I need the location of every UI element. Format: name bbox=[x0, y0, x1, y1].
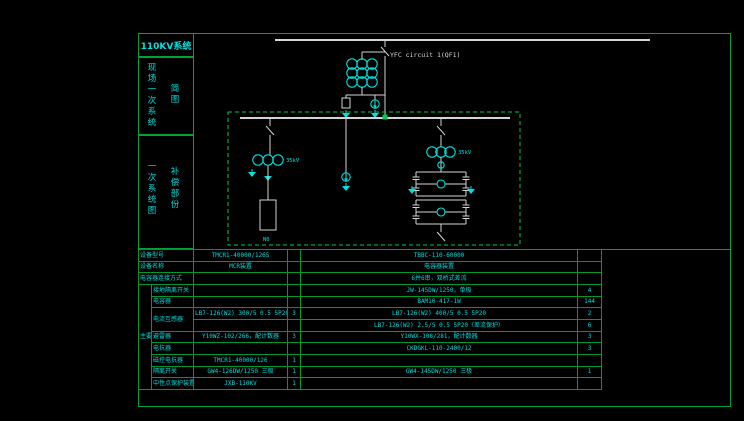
spec-qty: 4 bbox=[578, 284, 602, 296]
feeder-label: YFC circuit 1(QF1) bbox=[390, 51, 460, 59]
spec-qty: 2 bbox=[578, 308, 602, 320]
capacitor-bridge bbox=[413, 172, 470, 196]
ground-icon bbox=[408, 186, 416, 194]
grounding-switch-icon bbox=[437, 232, 445, 241]
sidebar-section-compensation: 一次系统图 补偿部份 bbox=[138, 135, 194, 249]
title-block-sidebar: 110KV系统 现场一次系统 简图 一次系统图 补偿部份 bbox=[138, 33, 194, 249]
disconnect-switch-icon bbox=[266, 126, 274, 135]
spec-label: 避雷器 bbox=[152, 331, 194, 343]
spec-value: LB7-126(W2) 2.5/5 0.5 5P20（差流保护） bbox=[301, 319, 578, 331]
spec-value: TMCR1-40000/126 bbox=[194, 354, 288, 366]
table-row: 电抗器 CKDGKL-110-2400/12 3 bbox=[139, 343, 602, 355]
table-row: 隔离开关 GW4-126DW/1250 三极 1 GW4-145DW/1250 … bbox=[139, 366, 602, 378]
spec-qty: 6 bbox=[578, 319, 602, 331]
bus-arrester-branch bbox=[342, 118, 350, 191]
spec-qty bbox=[288, 273, 301, 285]
section-sublabel: 简图 bbox=[170, 84, 180, 106]
spec-value: LB7-126(W2) 400/5 0.5 5P20 bbox=[301, 308, 578, 320]
table-row: 磁控电抗器 TMCR1-40000/126 1 bbox=[139, 354, 602, 366]
spec-qty bbox=[288, 250, 301, 262]
spec-value: BAM10-417-1W bbox=[301, 296, 578, 308]
spec-qty: 3 bbox=[578, 331, 602, 343]
ground-icon bbox=[342, 110, 350, 118]
spec-qty bbox=[288, 319, 301, 331]
section-label: 现场一次系统 bbox=[147, 63, 157, 129]
spec-label: 电容器 bbox=[152, 296, 194, 308]
spec-qty bbox=[288, 261, 301, 273]
spec-value bbox=[194, 273, 288, 285]
reactor-voltage-label: 35kV bbox=[286, 158, 300, 164]
table-row: 电容器连接方式 6并6串，双桥式差流 bbox=[139, 273, 602, 285]
cad-drawing-canvas: YFC circuit 1(QF1) bbox=[0, 0, 744, 421]
feeder-branch: YFC circuit 1(QF1) bbox=[381, 41, 460, 118]
table-row: 电容器 BAM10-417-1W 144 bbox=[139, 296, 602, 308]
spec-value bbox=[301, 354, 578, 366]
spec-value bbox=[194, 319, 288, 331]
spec-value: MCR装置 bbox=[194, 261, 288, 273]
spec-qty: 1 bbox=[288, 354, 301, 366]
spec-value: GW4-126DW/1250 三极 bbox=[194, 366, 288, 378]
drawing-title: 110KV系统 bbox=[138, 33, 194, 57]
capacitor-bridge bbox=[413, 200, 470, 224]
spec-value: 电容器装置 bbox=[301, 261, 578, 273]
table-row: 主要元件 接地隔离开关 JW-145DW/1250，单极 4 bbox=[139, 284, 602, 296]
spec-label: 电容器连接方式 bbox=[139, 273, 194, 285]
spec-value bbox=[301, 378, 578, 390]
spec-value: LB7-126(W2) 300/5 0.5 5P20 bbox=[194, 308, 288, 320]
spec-label: 磁控电抗器 bbox=[152, 354, 194, 366]
ground-icon bbox=[342, 183, 350, 191]
ground-icon bbox=[371, 110, 379, 118]
spec-qty bbox=[578, 273, 602, 285]
reactor-body-icon bbox=[260, 200, 276, 230]
pt-fuse-branch bbox=[342, 95, 385, 118]
spec-value: GW4-145DW/1250 三极 bbox=[301, 366, 578, 378]
section-label: 一次系统图 bbox=[147, 162, 157, 217]
bus-junction bbox=[383, 115, 388, 120]
ground-icon bbox=[248, 169, 256, 177]
section-sublabel: 补偿部份 bbox=[170, 167, 180, 211]
spec-qty: 144 bbox=[578, 296, 602, 308]
spec-qty: 1 bbox=[288, 366, 301, 378]
disconnect-switch-icon bbox=[437, 126, 445, 135]
spec-value: Y10WX-108/281，配计数器 bbox=[301, 331, 578, 343]
equipment-spec-table: 设备型号 TMCR1-40000/126S TBBC-110-60000 设备名… bbox=[138, 249, 602, 390]
spec-value bbox=[194, 343, 288, 355]
spec-label: 电流互感器 bbox=[152, 308, 194, 331]
table-row: 设备名称 MCR装置 电容器装置 bbox=[139, 261, 602, 273]
spec-value: JXB-110KV bbox=[194, 378, 288, 390]
spec-qty: 3 bbox=[578, 343, 602, 355]
spec-label: 隔离开关 bbox=[152, 366, 194, 378]
spec-value: Y10WZ-102/266，配计数器 bbox=[194, 331, 288, 343]
spec-label: 接地隔离开关 bbox=[152, 284, 194, 296]
spec-group-label: 主要元件 bbox=[139, 284, 152, 389]
spec-label: 设备名称 bbox=[139, 261, 194, 273]
ground-icon bbox=[467, 186, 475, 194]
spec-qty bbox=[578, 354, 602, 366]
spec-qty: 1 bbox=[288, 378, 301, 390]
spec-value: TMCR1-40000/126S bbox=[194, 250, 288, 262]
table-row: 电流互感器 LB7-126(W2) 300/5 0.5 5P20 3 LB7-1… bbox=[139, 308, 602, 320]
spec-qty bbox=[578, 250, 602, 262]
spec-qty: 3 bbox=[288, 308, 301, 320]
spec-qty bbox=[288, 343, 301, 355]
capacitor-branch: 35kV bbox=[408, 118, 475, 241]
spec-value: 6并6串，双桥式差流 bbox=[301, 273, 578, 285]
spec-label: 中性点保护装置 bbox=[152, 378, 194, 390]
table-row: 设备型号 TMCR1-40000/126S TBBC-110-60000 bbox=[139, 250, 602, 262]
mcr-transformer-icon bbox=[347, 52, 385, 95]
spec-value: CKDGKL-110-2400/12 bbox=[301, 343, 578, 355]
neutral-label: N0 bbox=[263, 237, 270, 243]
spec-value: JW-145DW/1250，单极 bbox=[301, 284, 578, 296]
fuse-icon bbox=[342, 98, 350, 108]
spec-qty bbox=[578, 378, 602, 390]
table-row: 避雷器 Y10WZ-102/266，配计数器 3 Y10WX-108/281，配… bbox=[139, 331, 602, 343]
reactor-branch: 35kV N0 bbox=[248, 118, 300, 243]
table-row: LB7-126(W2) 2.5/5 0.5 5P20（差流保护） 6 bbox=[139, 319, 602, 331]
spec-value bbox=[194, 284, 288, 296]
spec-label: 电抗器 bbox=[152, 343, 194, 355]
table-row: 中性点保护装置 JXB-110KV 1 bbox=[139, 378, 602, 390]
spec-qty: 1 bbox=[578, 366, 602, 378]
spec-qty bbox=[578, 261, 602, 273]
spec-qty bbox=[288, 296, 301, 308]
spec-label: 设备型号 bbox=[139, 250, 194, 262]
spec-value bbox=[194, 296, 288, 308]
capacitor-voltage-label: 35kV bbox=[458, 150, 472, 156]
spec-value: TBBC-110-60000 bbox=[301, 250, 578, 262]
spec-qty bbox=[288, 284, 301, 296]
sidebar-section-overview: 现场一次系统 简图 bbox=[138, 57, 194, 135]
spec-qty: 3 bbox=[288, 331, 301, 343]
